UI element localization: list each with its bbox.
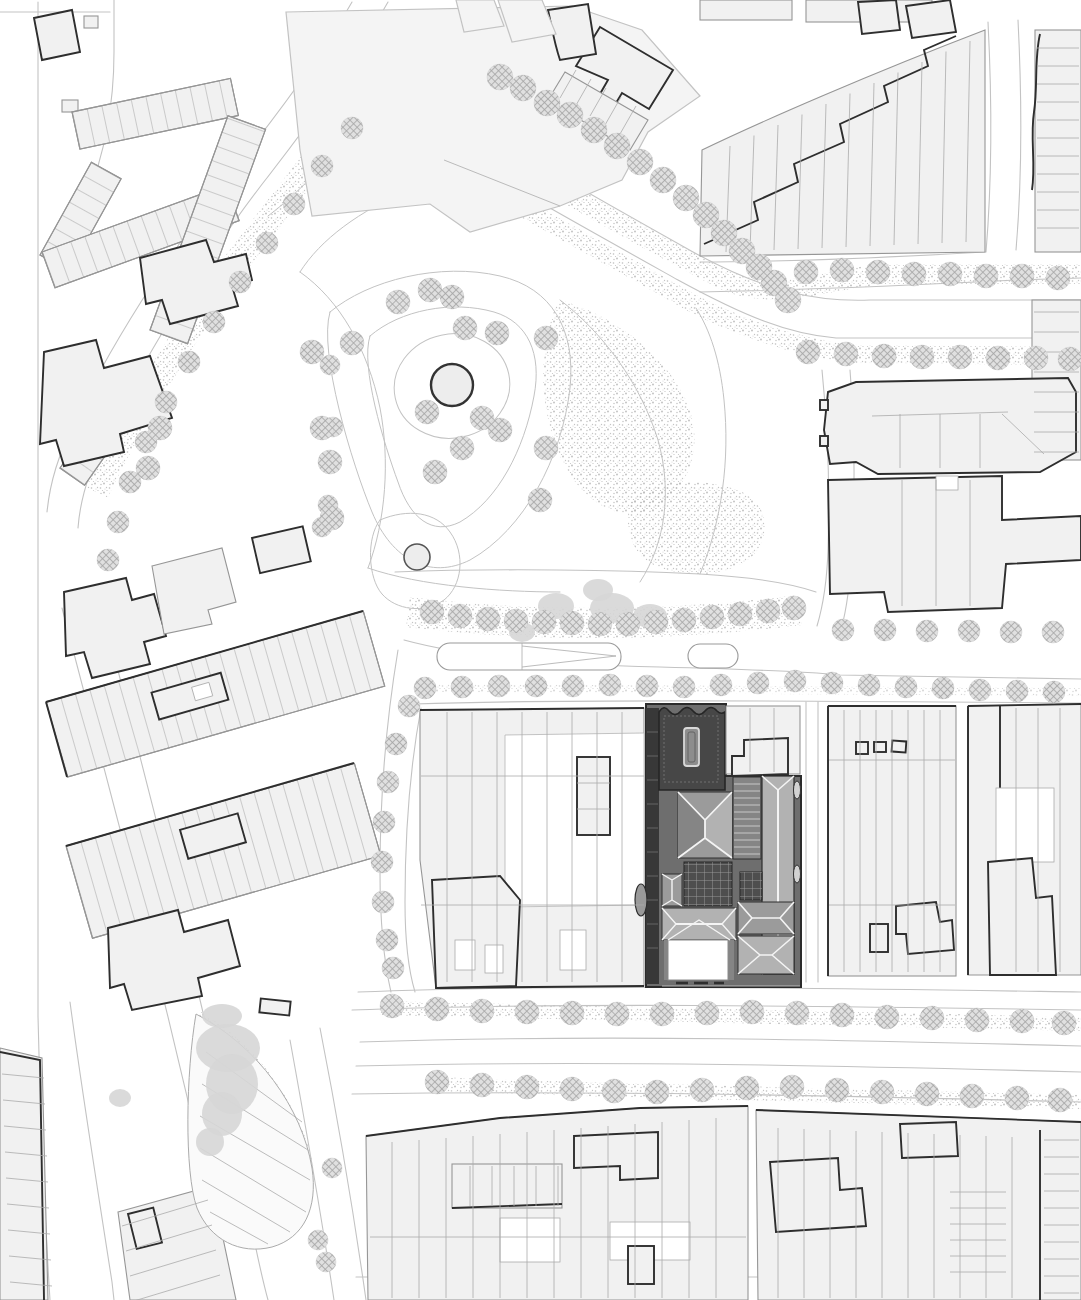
tree-park [318,450,342,474]
tree-site-street [895,676,917,698]
building-tiny-bold [856,742,868,754]
hip-roof-small [662,874,682,906]
building-tiny-bold [892,741,907,753]
tree-park-boulevard [476,607,500,631]
tree-park [450,436,474,460]
tree-right-blocks-street [1042,621,1064,643]
tower-skylight [684,728,699,766]
tree-site-street [1006,680,1028,702]
tree-right-blocks-street [874,619,896,641]
tree-site-street [414,677,436,699]
tree-park [386,290,410,314]
tree-park-boulevard [672,608,696,632]
mound-contour-outer [327,271,570,568]
tree-boulevard-north-row [830,1003,854,1027]
tree-boulevard-south-row [645,1080,669,1104]
tree-avenue-diagonal [557,102,583,128]
map-detail [252,526,311,573]
hip-roof-2 [662,908,736,940]
building-bold [900,1122,958,1158]
roundabout-circle [404,544,430,570]
mound-contour-mid [368,307,537,527]
building-small-bold [34,10,80,60]
tree-boulevard-south-row [825,1078,849,1102]
tree-right-blocks-street [916,620,938,642]
tree-boulevard-north-row [875,1005,899,1029]
tree-park [534,326,558,350]
tree-boulevard-south-row [1005,1086,1029,1110]
map-detail [1016,20,1021,250]
building-small-bold [252,526,311,573]
site-plan-drawing [0,0,1081,1300]
tree-park [423,460,447,484]
tree-boulevard-north-row [740,1000,764,1024]
tree-boulevard-north-row [1010,1009,1034,1033]
tree-boulevard-north-row [515,1000,539,1024]
flat-roof-plaid-b [740,872,762,900]
tree-park-boulevard [700,605,724,629]
tree-site-street [784,670,806,692]
tree-canal-bank [283,193,305,215]
tree-avenue-north-verge [974,264,998,288]
blob-tree [109,1089,131,1107]
courtyard-notch [936,476,958,490]
tree-park [418,278,442,302]
tree-park-boulevard [448,604,472,628]
tree-boulevard-north-row [560,1001,584,1025]
tree-boulevard-south-row [915,1082,939,1106]
block-yard [505,733,644,907]
institutional-building-2 [828,476,1081,612]
tree-boulevard-south-row [560,1077,584,1101]
tree-avenue-diagonal [487,64,513,90]
tree-boulevard-north-row [380,994,404,1018]
tree-park [485,321,509,345]
tree-site-street [599,674,621,696]
map-detail [66,763,381,938]
park-grass-patch [543,300,694,514]
map-detail [740,872,762,900]
map-detail [684,862,732,906]
tree-canal-bank [107,511,129,533]
tree-park [310,416,334,440]
building-bold [628,1246,654,1284]
tree-southwest-street [308,1230,328,1250]
blob-tree [583,579,613,601]
tree-boulevard-north-row [470,999,494,1023]
building-bold [870,924,888,952]
building-tiny [84,16,98,28]
tree-park-boulevard [728,602,752,626]
tree-park-boulevard [782,596,806,620]
inner-building-bold [577,757,610,835]
tree-site-street [451,676,473,698]
building-bold [858,0,900,34]
tree-canal-bank [256,232,278,254]
tree-boulevard-south-row [470,1073,494,1097]
tree-boulevard-south-row [515,1075,539,1099]
map-detail [70,1002,114,1300]
tree-canal-bank [203,311,225,333]
building-tiny-bold [259,998,290,1015]
tree-site-street [969,679,991,701]
tree-site-street [1043,681,1065,703]
tree-park-boulevard [420,600,444,624]
tree-avenue-diagonal [673,185,699,211]
park-grass-patch-2 [628,482,765,574]
dormer-lens [794,781,801,799]
tree-park [320,506,344,530]
tree-west-leg-street [371,851,393,873]
tree-avenue-south-verge [872,344,896,368]
tree-canal-bank [97,549,119,571]
tree-avenue-south-verge [910,345,934,369]
tree-canal-bank [178,351,200,373]
tree-boulevard-south-row [1048,1088,1072,1112]
tree-avenue-north-verge [830,258,854,282]
tree-boulevard-north-row [920,1006,944,1030]
tree-park-boulevard [560,611,584,635]
tree-park-boulevard [588,612,612,636]
site-plan-canvas [0,0,1081,1300]
tree-west-leg-street [377,771,399,793]
tree-park [340,331,364,355]
tree-site-street [710,674,732,696]
building-bold [906,0,956,38]
tree-avenue-north-verge [1046,266,1070,290]
tree-avenue-north-verge [902,262,926,286]
tree-avenue-diagonal [604,133,630,159]
building-pale [456,0,504,32]
tree-boulevard-south-row [690,1078,714,1102]
tree-avenue-south-verge [948,345,972,369]
map-detail [405,708,421,992]
yard-slot [485,945,503,973]
map-detail [728,940,734,980]
tree-avenue-north-verge [866,260,890,284]
building-strip-right [1035,30,1081,252]
tree-right-blocks-street [958,620,980,642]
terrace-row [72,78,238,149]
tree-site-street [821,672,843,694]
tree-west-leg-street [373,811,395,833]
hip-roof-3 [738,902,794,934]
hip-roof-1 [678,792,732,858]
tree-site-street [673,676,695,698]
tree-park [488,418,512,442]
tree-canal-bank [341,117,363,139]
tree-avenue-diagonal [534,90,560,116]
tree-boulevard-north-row [425,997,449,1021]
tree-avenue-north-verge [1010,264,1034,288]
tree-park-boulevard [616,612,640,636]
church-building-bold [64,578,166,678]
dormer-lens [794,865,801,883]
tree-park [534,436,558,460]
map-detail [356,1064,1081,1072]
roundabout [370,513,460,608]
building-cluster-bold [108,910,240,1010]
tree-park [440,285,464,309]
tree-site-street [858,674,880,696]
yard-slot [560,930,586,970]
tree-avenue-diagonal [775,287,801,313]
blob-tree [202,1004,242,1028]
park-pond-circle [431,364,473,406]
tree-west-leg-street [376,929,398,951]
tree-canal-bank [311,155,333,177]
tree-avenue-north-verge [794,260,818,284]
tree-canal-bank [229,271,251,293]
tree-site-street [562,675,584,697]
building-strip [700,0,792,20]
blob-tree [196,1128,224,1156]
map-detail [414,701,1081,704]
building-bold [432,876,520,988]
building-tiny [62,100,78,112]
tree-boulevard-south-row [425,1070,449,1094]
median-island-small [688,644,738,668]
project-site-building [635,704,801,987]
tree-right-blocks-street [1000,621,1022,643]
map-detail [986,22,991,252]
tree-avenue-south-verge [796,340,820,364]
courtyard [996,788,1054,862]
tree-boulevard-south-row [960,1084,984,1108]
map-detail [72,78,238,149]
site-west-wing [646,708,659,984]
terrace-band [66,763,381,938]
tree-park [453,316,477,340]
tree-boulevard-north-row [785,1001,809,1025]
tree-site-street [747,672,769,694]
tree-west-leg-street [398,695,420,717]
flat-roof-plaid-a [684,862,732,906]
tree-boulevard-south-row [602,1079,626,1103]
tree-park [136,456,160,480]
tree-avenue-diagonal [510,75,536,101]
terrace-strip [452,1164,562,1208]
tree-boulevard-south-row [735,1076,759,1100]
building-bump [820,400,828,410]
tree-avenue-south-verge [1058,347,1081,371]
map-detail [360,1038,1081,1046]
tree-boulevard-north-row [695,1001,719,1025]
courtyard [500,1218,560,1262]
map-detail [668,940,728,980]
tree-park [148,416,172,440]
tree-southwest-street [316,1252,336,1272]
tree-park [528,488,552,512]
park-mound [327,271,570,568]
tree-boulevard-south-row [780,1075,804,1099]
tree-west-leg-street [382,957,404,979]
tree-boulevard-north-row [965,1008,989,1032]
median-islands [437,643,738,670]
building-pale [152,548,236,634]
tree-site-street [932,677,954,699]
tree-site-street [525,675,547,697]
tree-canal-east-bank [320,355,340,375]
tree-park-boulevard [532,610,556,634]
tree-avenue-south-verge [1024,346,1048,370]
tree-park-boulevard [756,599,780,623]
tree-canal-bank [155,391,177,413]
tree-west-leg-street [385,733,407,755]
tree-park [415,400,439,424]
tree-avenue-diagonal [627,149,653,175]
stair-oval [635,884,647,916]
tree-avenue-south-verge [986,346,1010,370]
hip-roof-4 [738,936,794,974]
tree-avenue-south-verge [834,342,858,366]
building-bump [820,436,828,446]
tree-park-boulevard [504,609,528,633]
tree-avenue-north-verge [938,262,962,286]
tree-park [300,340,324,364]
tree-right-blocks-street [832,619,854,641]
tree-avenue-diagonal [581,117,607,143]
tree-boulevard-south-row [870,1080,894,1104]
tree-west-leg-street [372,891,394,913]
tree-site-street [636,675,658,697]
tree-avenue-diagonal [650,167,676,193]
tree-boulevard-north-row [650,1002,674,1026]
tree-boulevard-north-row [605,1002,629,1026]
tree-park-boulevard [644,610,668,634]
tree-site-street [488,675,510,697]
tree-southwest-street [322,1158,342,1178]
tree-boulevard-north-row [1052,1011,1076,1035]
